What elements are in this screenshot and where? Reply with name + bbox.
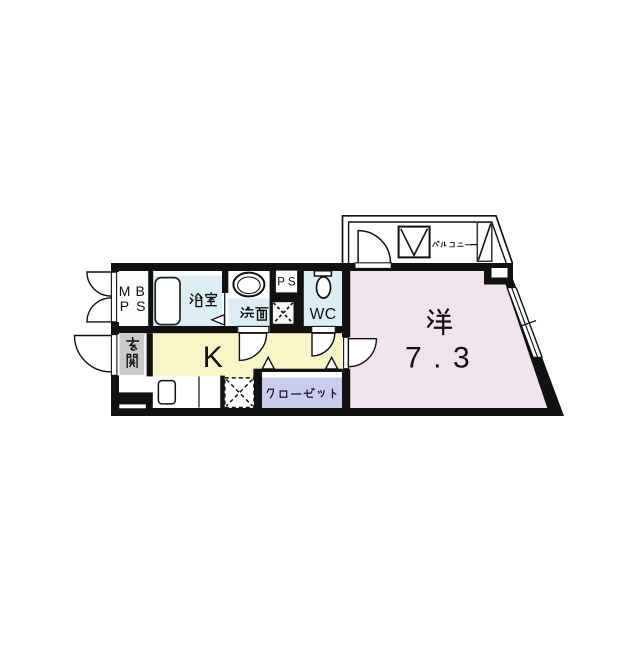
svg-text:WC: WC	[310, 306, 337, 323]
svg-text:K: K	[203, 341, 223, 374]
svg-text:PS: PS	[277, 276, 298, 289]
svg-text:PS: PS	[120, 298, 153, 314]
svg-text:MB: MB	[119, 283, 150, 299]
svg-text:7.3: 7.3	[405, 342, 481, 375]
